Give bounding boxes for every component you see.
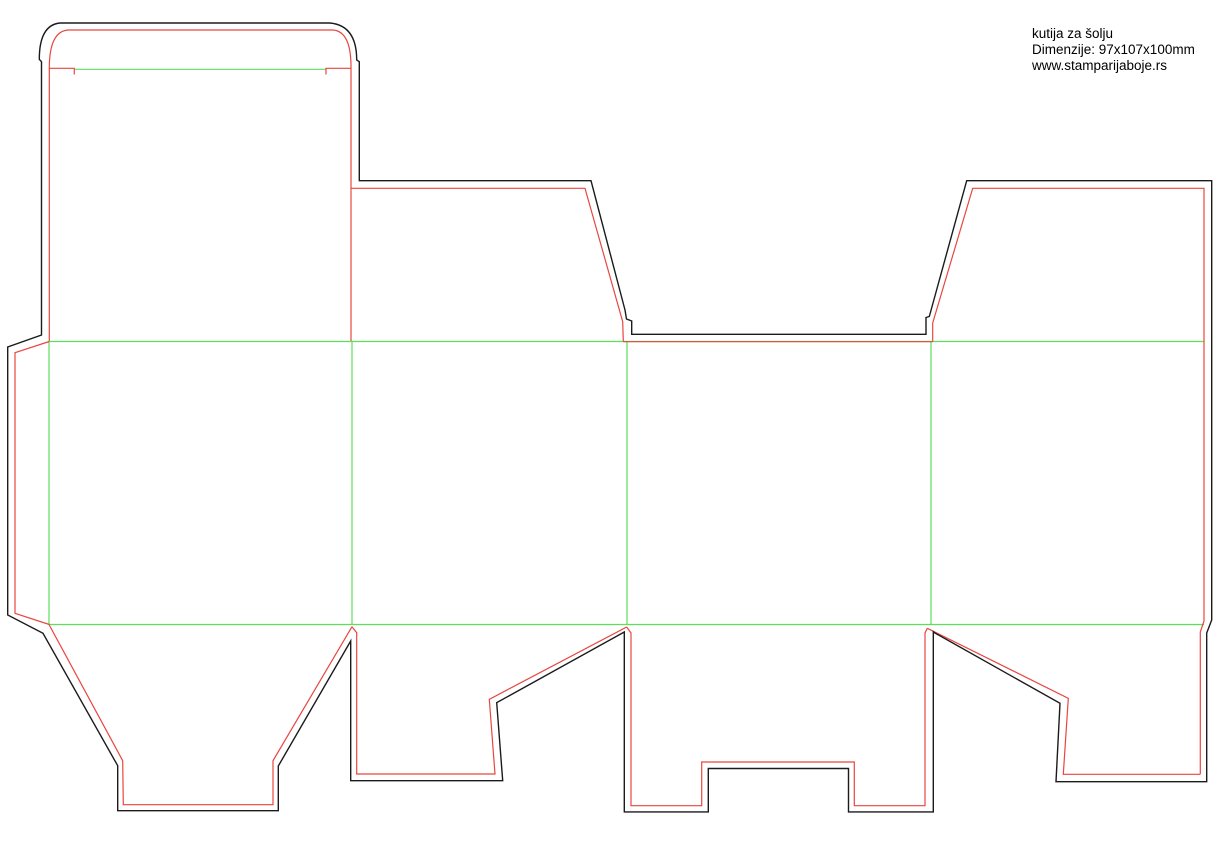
bleed-dust-flap-right	[933, 188, 1204, 774]
bleed-dust-flap-left	[351, 188, 623, 341]
dieline-page: kutija za šolju Dimenzije: 97x107x100mm …	[0, 0, 1219, 842]
bleed-bottom-flap-1	[49, 625, 352, 805]
bleed-tuck-shoulder-left	[49, 68, 74, 74]
box-dimensions: Dimenzije: 97x107x100mm	[1032, 42, 1195, 58]
bleed-tuck-shoulder-right	[326, 68, 351, 74]
bleed-lid-and-tuck	[49, 30, 351, 341]
annotation-block: kutija za šolju Dimenzije: 97x107x100mm …	[1032, 26, 1195, 74]
dieline-drawing	[0, 0, 1219, 842]
box-title: kutija za šolju	[1032, 26, 1195, 42]
bleed-bottom-flap-3	[627, 627, 928, 806]
bleed-bottom-flap-2	[352, 627, 627, 774]
cut-outline	[8, 23, 1212, 812]
website-url: www.stamparijaboje.rs	[1032, 58, 1195, 74]
bleed-glue-flap	[15, 342, 49, 625]
bleed-bottom-flap-4	[927, 628, 1200, 774]
